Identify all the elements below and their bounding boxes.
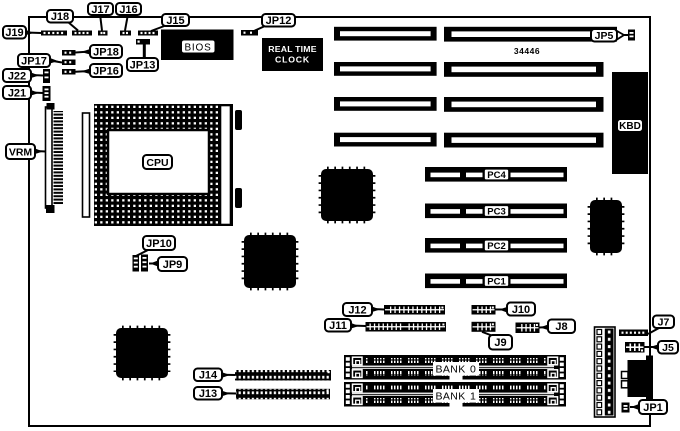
svg-text:CPU: CPU — [146, 157, 168, 169]
svg-text:J17: J17 — [91, 4, 109, 16]
svg-text:J18: J18 — [51, 11, 69, 23]
svg-text:J21: J21 — [8, 87, 26, 99]
svg-text:JP18: JP18 — [93, 46, 119, 58]
svg-text:JP5: JP5 — [595, 30, 614, 42]
svg-text:J10: J10 — [512, 304, 530, 316]
svg-text:J8: J8 — [555, 321, 567, 333]
svg-text:J11: J11 — [329, 320, 347, 332]
svg-text:JP17: JP17 — [21, 55, 47, 67]
svg-text:J22: J22 — [8, 70, 26, 82]
svg-text:PC2: PC2 — [487, 241, 505, 252]
svg-text:34446: 34446 — [514, 46, 540, 56]
svg-text:J12: J12 — [348, 304, 366, 316]
svg-text:J5: J5 — [662, 342, 674, 354]
svg-text:BANK: BANK — [436, 364, 466, 376]
svg-text:JP1: JP1 — [643, 402, 663, 414]
svg-text:J19: J19 — [5, 27, 23, 39]
svg-text:J7: J7 — [658, 317, 670, 329]
svg-text:PC1: PC1 — [487, 277, 506, 288]
svg-text:KBD: KBD — [619, 121, 641, 132]
svg-text:0: 0 — [470, 364, 476, 376]
svg-text:JP10: JP10 — [146, 238, 172, 250]
svg-text:BANK: BANK — [436, 391, 466, 403]
svg-text:J16: J16 — [119, 4, 137, 16]
svg-text:J15: J15 — [166, 15, 184, 27]
svg-text:CLOCK: CLOCK — [275, 55, 310, 65]
svg-text:JP12: JP12 — [266, 15, 292, 27]
svg-text:J13: J13 — [199, 388, 217, 400]
svg-text:VRM: VRM — [9, 146, 33, 158]
svg-text:J14: J14 — [199, 370, 218, 382]
svg-text:1: 1 — [470, 391, 476, 403]
svg-text:JP9: JP9 — [163, 259, 183, 271]
svg-text:REAL TIME: REAL TIME — [268, 44, 316, 54]
svg-text:PC3: PC3 — [487, 207, 505, 218]
svg-text:JP16: JP16 — [93, 65, 119, 77]
svg-text:BIOS: BIOS — [184, 43, 211, 54]
svg-text:JP13: JP13 — [130, 59, 156, 71]
svg-text:J9: J9 — [494, 337, 506, 349]
svg-text:PC4: PC4 — [487, 170, 506, 181]
